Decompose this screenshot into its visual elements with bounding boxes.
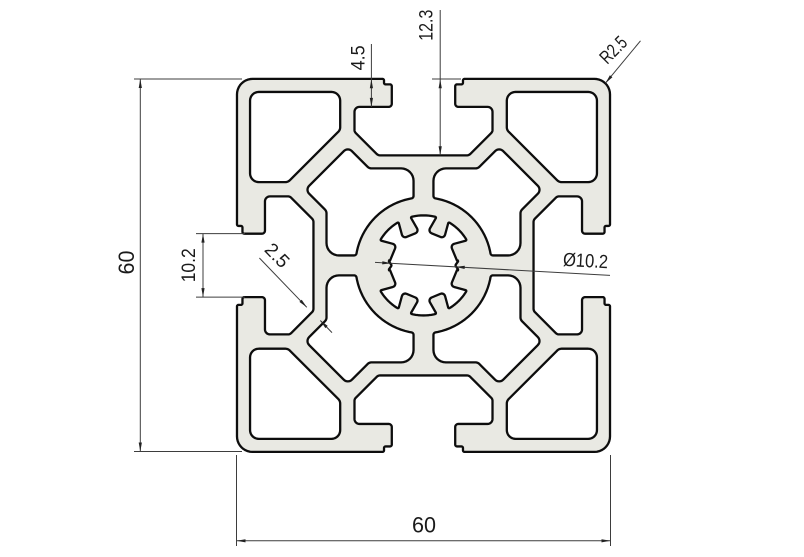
svg-text:4.5: 4.5 (349, 45, 370, 70)
svg-text:60: 60 (114, 251, 139, 275)
svg-text:60: 60 (412, 513, 436, 538)
svg-text:Ø10.2: Ø10.2 (562, 250, 608, 273)
svg-text:12.3: 12.3 (417, 10, 438, 41)
svg-text:10.2: 10.2 (179, 248, 200, 282)
